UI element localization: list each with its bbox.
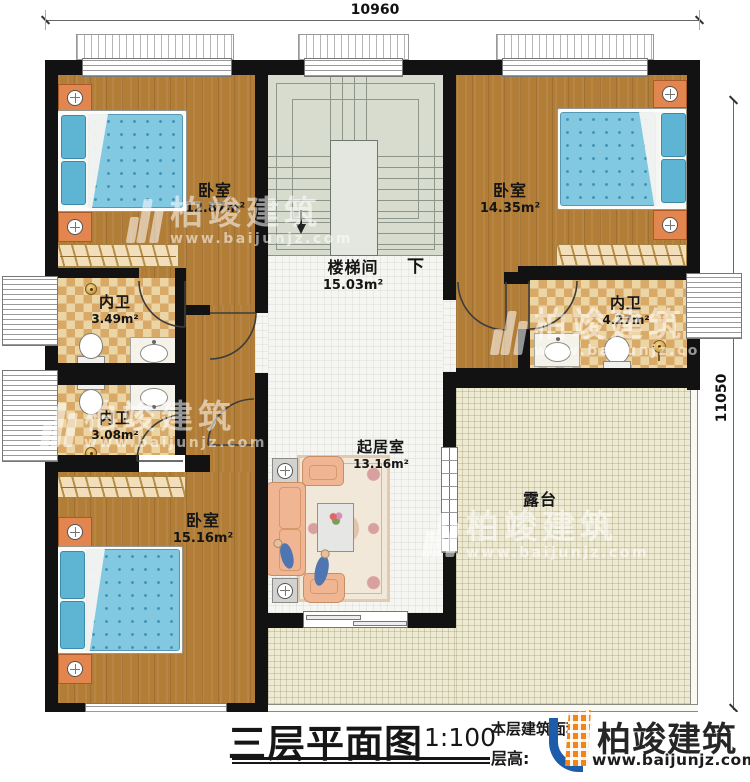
floor-terrace [456,388,690,704]
room-label-bedroom-top-left: 卧室 12.87m² [170,181,260,217]
balcony-railing [298,34,409,60]
window [82,58,232,77]
coffee-table [317,503,354,552]
side-table [272,458,298,483]
room-name: 卧室 [170,181,260,201]
title-underline [232,757,490,764]
pillow [60,601,85,649]
lamp-icon [662,86,678,102]
pillow [661,159,686,203]
closet-rod [60,256,175,257]
lamp-icon [662,217,678,233]
sliding-glass-door [441,447,458,553]
lamp-icon [67,661,83,677]
floor-plan: 卧室 12.87m² 卧室 14.35m² 卧室 15.16m² 内卫 3.49… [0,0,750,782]
lamp-icon [277,463,293,479]
brand-logo-icon [549,710,595,774]
wall [45,455,139,472]
room-area: 14.35m² [465,201,555,217]
room-area: 3.08m² [80,428,150,443]
brand-logo-orange [565,710,591,766]
room-label-bathroom-left-lower: 内卫 3.08m² [80,409,150,443]
closet [57,476,186,498]
room-name: 内卫 [80,409,150,428]
sofa-cushion [309,465,337,480]
wall [183,305,210,315]
sofa-cushion [279,487,301,529]
window-bay [686,273,742,339]
faucet-icon [556,337,560,341]
wall [255,613,303,628]
room-area: 12.87m² [170,201,260,217]
glass-door-leaf [306,615,361,620]
nightstand [58,517,92,547]
room-area: 3.49m² [80,312,150,327]
room-label-terrace: 露台 [505,490,575,510]
stair-treads-left [268,146,330,256]
wall [255,373,268,718]
stair-core [330,140,378,256]
room-name: 内卫 [80,293,150,312]
dimension-extension [45,10,46,30]
flower-decor [329,511,343,525]
plan-scale: 1:100 [424,723,496,752]
toilet [604,336,630,364]
wall [45,363,186,385]
room-name: 起居室 [338,438,424,457]
sink-basin [140,344,168,363]
wall [57,268,139,278]
window [502,58,648,77]
wall [443,60,456,300]
closet [556,244,687,266]
side-table [272,578,298,603]
terrace-railing-bottom [268,704,698,712]
terrace-railing-right [690,388,698,712]
nightstand [653,80,687,108]
floor-passage-left [255,313,268,373]
room-label-bathroom-left-upper: 内卫 3.49m² [80,293,150,327]
window-bay [2,276,58,346]
shower-knob-stem [658,352,660,361]
room-name: 楼梯间 [308,258,398,278]
nightstand [653,210,687,240]
room-label-living-room: 起居室 13.16m² [338,438,424,472]
room-label-bedroom-bottom-left: 卧室 15.16m² [158,511,248,547]
stair-treads-top [330,75,378,141]
wall [504,272,530,284]
lamp-icon [67,524,83,540]
room-name: 露台 [505,490,575,510]
sink-basin [544,342,571,362]
toilet [79,333,103,359]
room-area: 13.16m² [338,457,424,472]
balcony-railing [76,34,234,60]
pillow [61,161,86,205]
room-area: 15.16m² [158,531,248,547]
wall [687,337,700,390]
lamp-icon [277,583,293,599]
dimension-top-line [45,20,700,21]
pillow [661,113,686,157]
closet [57,244,179,267]
sink-counter [534,333,580,367]
room-name: 内卫 [588,294,664,313]
dimension-right-line [733,100,734,710]
nightstand [58,212,92,242]
stair-direction-label: 下 [407,252,424,277]
balcony-railing [496,34,654,60]
dimension-extension [699,10,700,30]
lamp-icon [67,219,83,235]
title-block: 三层平面图 1:100 本层建筑面积: 层高: 柏竣建筑 www.baijunj… [0,712,750,782]
dimension-right-label: 11050 [714,366,730,430]
wall [185,455,210,472]
room-area: 4.27m² [588,313,664,328]
wall [408,613,456,628]
sliding-glass-door [303,611,408,628]
brand-url: www.baijunjz.com [592,751,750,769]
nightstand [58,654,92,684]
stair-treads-right [378,146,443,256]
room-name: 卧室 [465,181,555,201]
wall [687,60,700,275]
faucet-icon [152,340,156,344]
pillow [60,551,85,599]
faucet-icon [152,405,156,409]
floor-height-label: 层高: [491,745,529,769]
room-label-bedroom-top-right: 卧室 14.35m² [465,181,555,217]
wall [175,268,186,455]
dimension-top-label: 10960 [300,2,450,18]
pillow [61,115,86,159]
floor-passage-right [443,300,456,372]
closet-rod [61,487,183,488]
floor-terrace-lower [268,628,456,704]
wall [456,368,687,388]
room-area: 15.03m² [308,278,398,294]
room-label-stairwell: 楼梯间 15.03m² [308,258,398,294]
closet-rod [560,255,684,256]
room-name: 卧室 [158,511,248,531]
wall [443,372,456,447]
room-label-bathroom-right: 内卫 4.27m² [588,294,664,328]
wall [525,266,687,280]
window [304,58,403,77]
lamp-icon [67,90,83,106]
sink-counter [130,381,177,411]
window-bay [2,370,58,462]
nightstand [58,84,92,111]
floor-corridor-left [186,305,255,472]
glass-door-leaf [353,621,407,626]
